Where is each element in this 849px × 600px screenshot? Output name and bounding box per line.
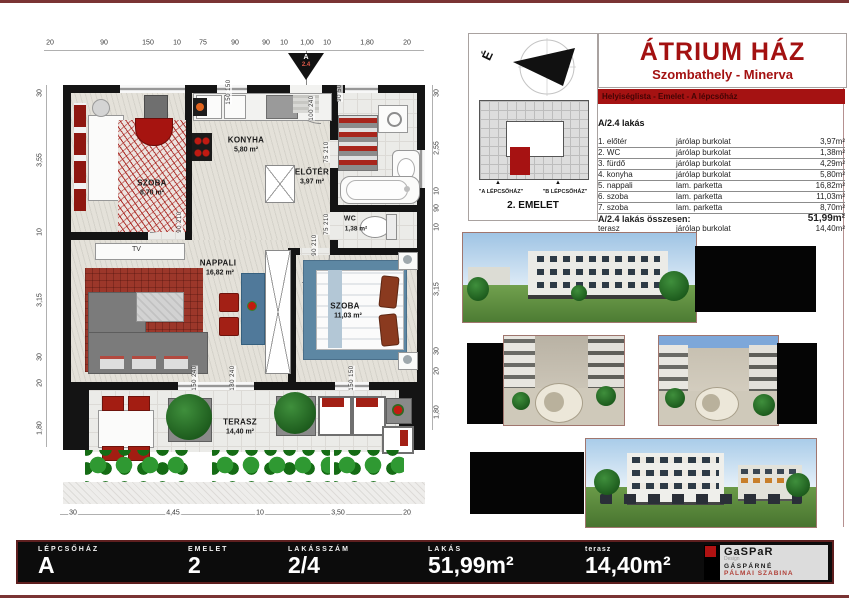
stair-b-arrow: ▲ [555, 180, 561, 186]
hedge [85, 450, 191, 482]
nightstand-lamp [403, 355, 412, 364]
stair-a-label: "A LÉPCSŐHÁZ" [471, 189, 531, 195]
wall-segment [63, 382, 178, 390]
wall-interior [330, 168, 338, 212]
plant [274, 392, 316, 434]
dimension-label: 30 [37, 352, 44, 362]
dimension-line [44, 50, 424, 51]
sofa-cushion [100, 356, 124, 369]
footer-cell-terrace-area: terasz 14,40m² [585, 546, 671, 577]
dimension-label: 30 [37, 88, 44, 98]
tree [659, 271, 689, 301]
opening-label: 75 210 [324, 213, 330, 234]
project-subtitle: Szombathely - Minerva [599, 67, 846, 82]
wall-interior [338, 205, 425, 212]
terrace-wall-left [63, 390, 89, 450]
dimension-label: 10 [172, 40, 182, 47]
dimension-label: 10 [434, 186, 441, 196]
lounge-headrest [356, 398, 378, 407]
ground-strip [63, 482, 425, 504]
dining-chair [219, 293, 239, 312]
dimension-label: 1,80 [37, 420, 44, 436]
dining-chair [219, 317, 239, 336]
dimension-label: 1,80 [434, 404, 441, 420]
unit-marker-stair: A [288, 54, 324, 61]
bathtub-drain [404, 186, 410, 192]
opening-label: 75 210 [324, 141, 330, 162]
plant [753, 394, 775, 416]
room-row: 1. előtérjárólap burkolat3,97m² [598, 137, 845, 148]
towel-shelf [338, 115, 378, 171]
room-label: SZOBA [137, 179, 167, 188]
dimension-label: 1,00 [299, 40, 315, 47]
black-mask [695, 246, 816, 312]
logo-architect-name-1: GÁSPÁRNÉ [724, 563, 824, 570]
bathtub-basin [346, 180, 408, 200]
terrace-chair [128, 396, 150, 411]
page-border-bottom [0, 595, 849, 598]
stair-b-label: "B LÉPCSŐHÁZ" [535, 189, 595, 195]
window [120, 85, 186, 93]
coffee-table [136, 292, 184, 322]
render-photo-exterior-1 [462, 232, 697, 323]
room-area: 11,03 m² [334, 313, 362, 320]
wall-segment [417, 188, 425, 390]
dimension-label: 20 [402, 510, 412, 517]
footer-value: 51,99m² [428, 553, 514, 577]
room-label: NAPPALI [200, 259, 237, 268]
parked-cars [600, 494, 802, 504]
opening-label: 150 150 [349, 365, 355, 390]
terrace-chair [102, 396, 124, 411]
wall-segment [247, 85, 290, 93]
dimension-label: 10 [279, 40, 289, 47]
dimension-label: 75 [198, 40, 208, 47]
dimension-label: 20 [434, 366, 441, 376]
lounge-cushion [400, 430, 408, 446]
stair-a-arrow: ▲ [495, 180, 501, 186]
panel-right-edge-line [843, 33, 844, 527]
footer-value: 2 [188, 553, 228, 577]
toilet-tank [386, 214, 397, 240]
dimension-label: 3,55 [37, 152, 44, 168]
wall-segment [417, 85, 425, 150]
render-photo-courtyard-2 [658, 335, 779, 426]
appliance-dot [196, 103, 204, 111]
black-mask [467, 343, 503, 424]
dimension-label: 20 [45, 40, 55, 47]
dimension-label: 3,15 [37, 292, 44, 308]
wall-segment [369, 382, 425, 390]
black-mask [470, 452, 584, 514]
plant [665, 388, 685, 408]
nightstand-lamp [403, 255, 412, 264]
entrance-opening [290, 85, 322, 93]
dimension-label: 4,45 [165, 510, 181, 517]
dimension-label: 10 [37, 227, 44, 237]
room-area: 5,80 m² [234, 147, 258, 154]
opening-label: 90 50 [337, 84, 343, 102]
dimension-line [432, 85, 433, 430]
black-mask [777, 343, 817, 424]
tree [594, 469, 620, 495]
footer-cell-apartment-area: LAKÁS 51,99m² [428, 546, 514, 577]
dimension-label: 30 [434, 88, 441, 98]
architect-logo: GaSPaR Design GÁSPÁRNÉ PÁLMAI SZABINA [704, 545, 828, 580]
dimension-label: 10 [322, 40, 332, 47]
dimension-label: 20 [37, 378, 44, 388]
project-title: ÁTRIUM HÁZ [599, 38, 846, 67]
wardrobe [74, 103, 86, 211]
compass-icon [497, 36, 589, 98]
pillow [378, 275, 399, 309]
keyplan-highlighted-unit [510, 147, 530, 175]
render-photo-courtyard-1 [503, 335, 625, 426]
room-label: SZOBA [330, 302, 360, 311]
title-block-footer: LÉPCSŐHÁZ A EMELET 2 LAKÁSSZÁM 2/4 LAKÁS… [16, 540, 834, 584]
room-area: 14,40 m² [226, 429, 254, 436]
plant [596, 386, 616, 406]
room-schedule: A/2.4 lakás 1. előtérjárólap burkolat3,9… [598, 118, 845, 234]
dimension-label: 30 [68, 510, 78, 517]
pillow [378, 313, 399, 347]
hall-cabinet [265, 250, 291, 374]
sofa-cushion [164, 356, 188, 369]
floor-plan-sheet: TV [0, 0, 849, 600]
dimension-label: 10 [434, 222, 441, 232]
washing-machine-door [387, 112, 402, 127]
room-label: KONYHA [228, 136, 264, 145]
yin-yang-garden [695, 387, 739, 421]
section-banner-text: Helyiséglista - Emelet - A lépcsőház [598, 89, 845, 104]
builtin-closet [265, 165, 295, 203]
opening-label: 150 240 [192, 365, 198, 390]
opening-label: 150 150 [226, 79, 232, 104]
room-row: 3. fürdőjárólap burkolat4,29m² [598, 159, 845, 170]
wall-segment [63, 85, 120, 93]
keyplan-floor-label: 2. EMELET [469, 200, 597, 211]
footer-value: 2/4 [288, 553, 350, 577]
window [345, 85, 378, 93]
room-schedule-heading: A/2.4 lakás [598, 118, 845, 128]
dimension-label: 90 [99, 40, 109, 47]
tree [786, 473, 810, 497]
opening-label: 90 210 [312, 234, 318, 255]
footer-value: A [38, 553, 99, 577]
tree [571, 285, 587, 301]
table-flower [247, 301, 257, 311]
room-area: 16,82 m² [206, 270, 234, 277]
window [217, 85, 247, 93]
footer-cell-floor: EMELET 2 [188, 546, 228, 577]
unit-marker-number: 2.4 [288, 62, 324, 68]
keyplan-drawing [479, 100, 589, 180]
unit-marker: A 2.4 [288, 53, 324, 81]
dimension-label: 90 [434, 203, 441, 213]
rendered-building [528, 251, 668, 300]
hedge [334, 450, 404, 482]
terrace-table [98, 410, 154, 448]
plant [166, 394, 212, 440]
logo-architect-name-2: PÁLMAI SZABINA [724, 570, 824, 577]
dimension-label: 3,15 [434, 281, 441, 297]
opening-label: 180 240 [230, 365, 236, 390]
wall-interior [185, 85, 192, 240]
room-row: 4. konyhajárólap burkolat5,80m² [598, 170, 845, 181]
footer-value: 14,40m² [585, 553, 671, 577]
room-area: 1,38 m² [345, 226, 367, 233]
plant [512, 392, 530, 410]
room-label: TERASZ [223, 418, 257, 427]
section-banner: Helyiséglista - Emelet - A lépcsőház [598, 89, 845, 104]
footer-cell-staircase: LÉPCSŐHÁZ A [38, 546, 99, 577]
title-box: ÁTRIUM HÁZ Szombathely - Minerva [598, 33, 847, 88]
keyplan-box: É ▲ ▲ "A LÉPCSŐHÁZ" "B LÉPCSŐHÁZ" 2. EME… [468, 33, 598, 221]
stove [192, 133, 212, 161]
opening-label: 100 240 [309, 95, 315, 120]
room-row: 6. szobalam. parketta11,03m² [598, 192, 845, 203]
tree [467, 277, 489, 301]
hedge [212, 450, 330, 482]
floor-plan: TV [0, 0, 460, 535]
logo-icon [704, 545, 720, 580]
footer-cell-unit-number: LAKÁSSZÁM 2/4 [288, 546, 350, 577]
opening-label: 90 210 [177, 211, 183, 232]
room-area: 3,97 m² [300, 179, 324, 186]
dimension-label: 90 [230, 40, 240, 47]
lounge-headrest [322, 398, 344, 407]
room-total-row: A/2.4 lakás összesen: 51,99m² [598, 214, 845, 224]
room-row: 5. nappalilam. parketta16,82m² [598, 181, 845, 192]
wall-interior [63, 232, 148, 240]
flower [392, 404, 404, 416]
render-photo-exterior-2 [585, 438, 817, 528]
room-area: 8,70 m² [140, 190, 164, 197]
dimension-label: 1,80 [359, 40, 375, 47]
dimension-label: 2,55 [434, 140, 441, 156]
dimension-label: 20 [402, 40, 412, 47]
sofa-cushion [132, 356, 156, 369]
dimension-label: 30 [434, 346, 441, 356]
dimension-line [60, 514, 412, 515]
door-mat [293, 95, 319, 113]
dimension-label: 10 [255, 510, 265, 517]
dimension-label: 3,50 [330, 510, 346, 517]
north-label: É [479, 48, 496, 62]
ceiling-lamp [92, 99, 110, 117]
logo-text-block: GaSPaR Design GÁSPÁRNÉ PÁLMAI SZABINA [720, 545, 828, 580]
tv-label: TV [132, 246, 141, 253]
wall-segment [254, 382, 335, 390]
room-label: WC [344, 216, 356, 223]
dimension-line [46, 85, 47, 447]
room-label: ELŐTÉR [295, 168, 329, 177]
dimension-label: 150 [141, 40, 155, 47]
room-row: 2. WCjárólap burkolat1,38m² [598, 148, 845, 159]
dimension-label: 90 [261, 40, 271, 47]
